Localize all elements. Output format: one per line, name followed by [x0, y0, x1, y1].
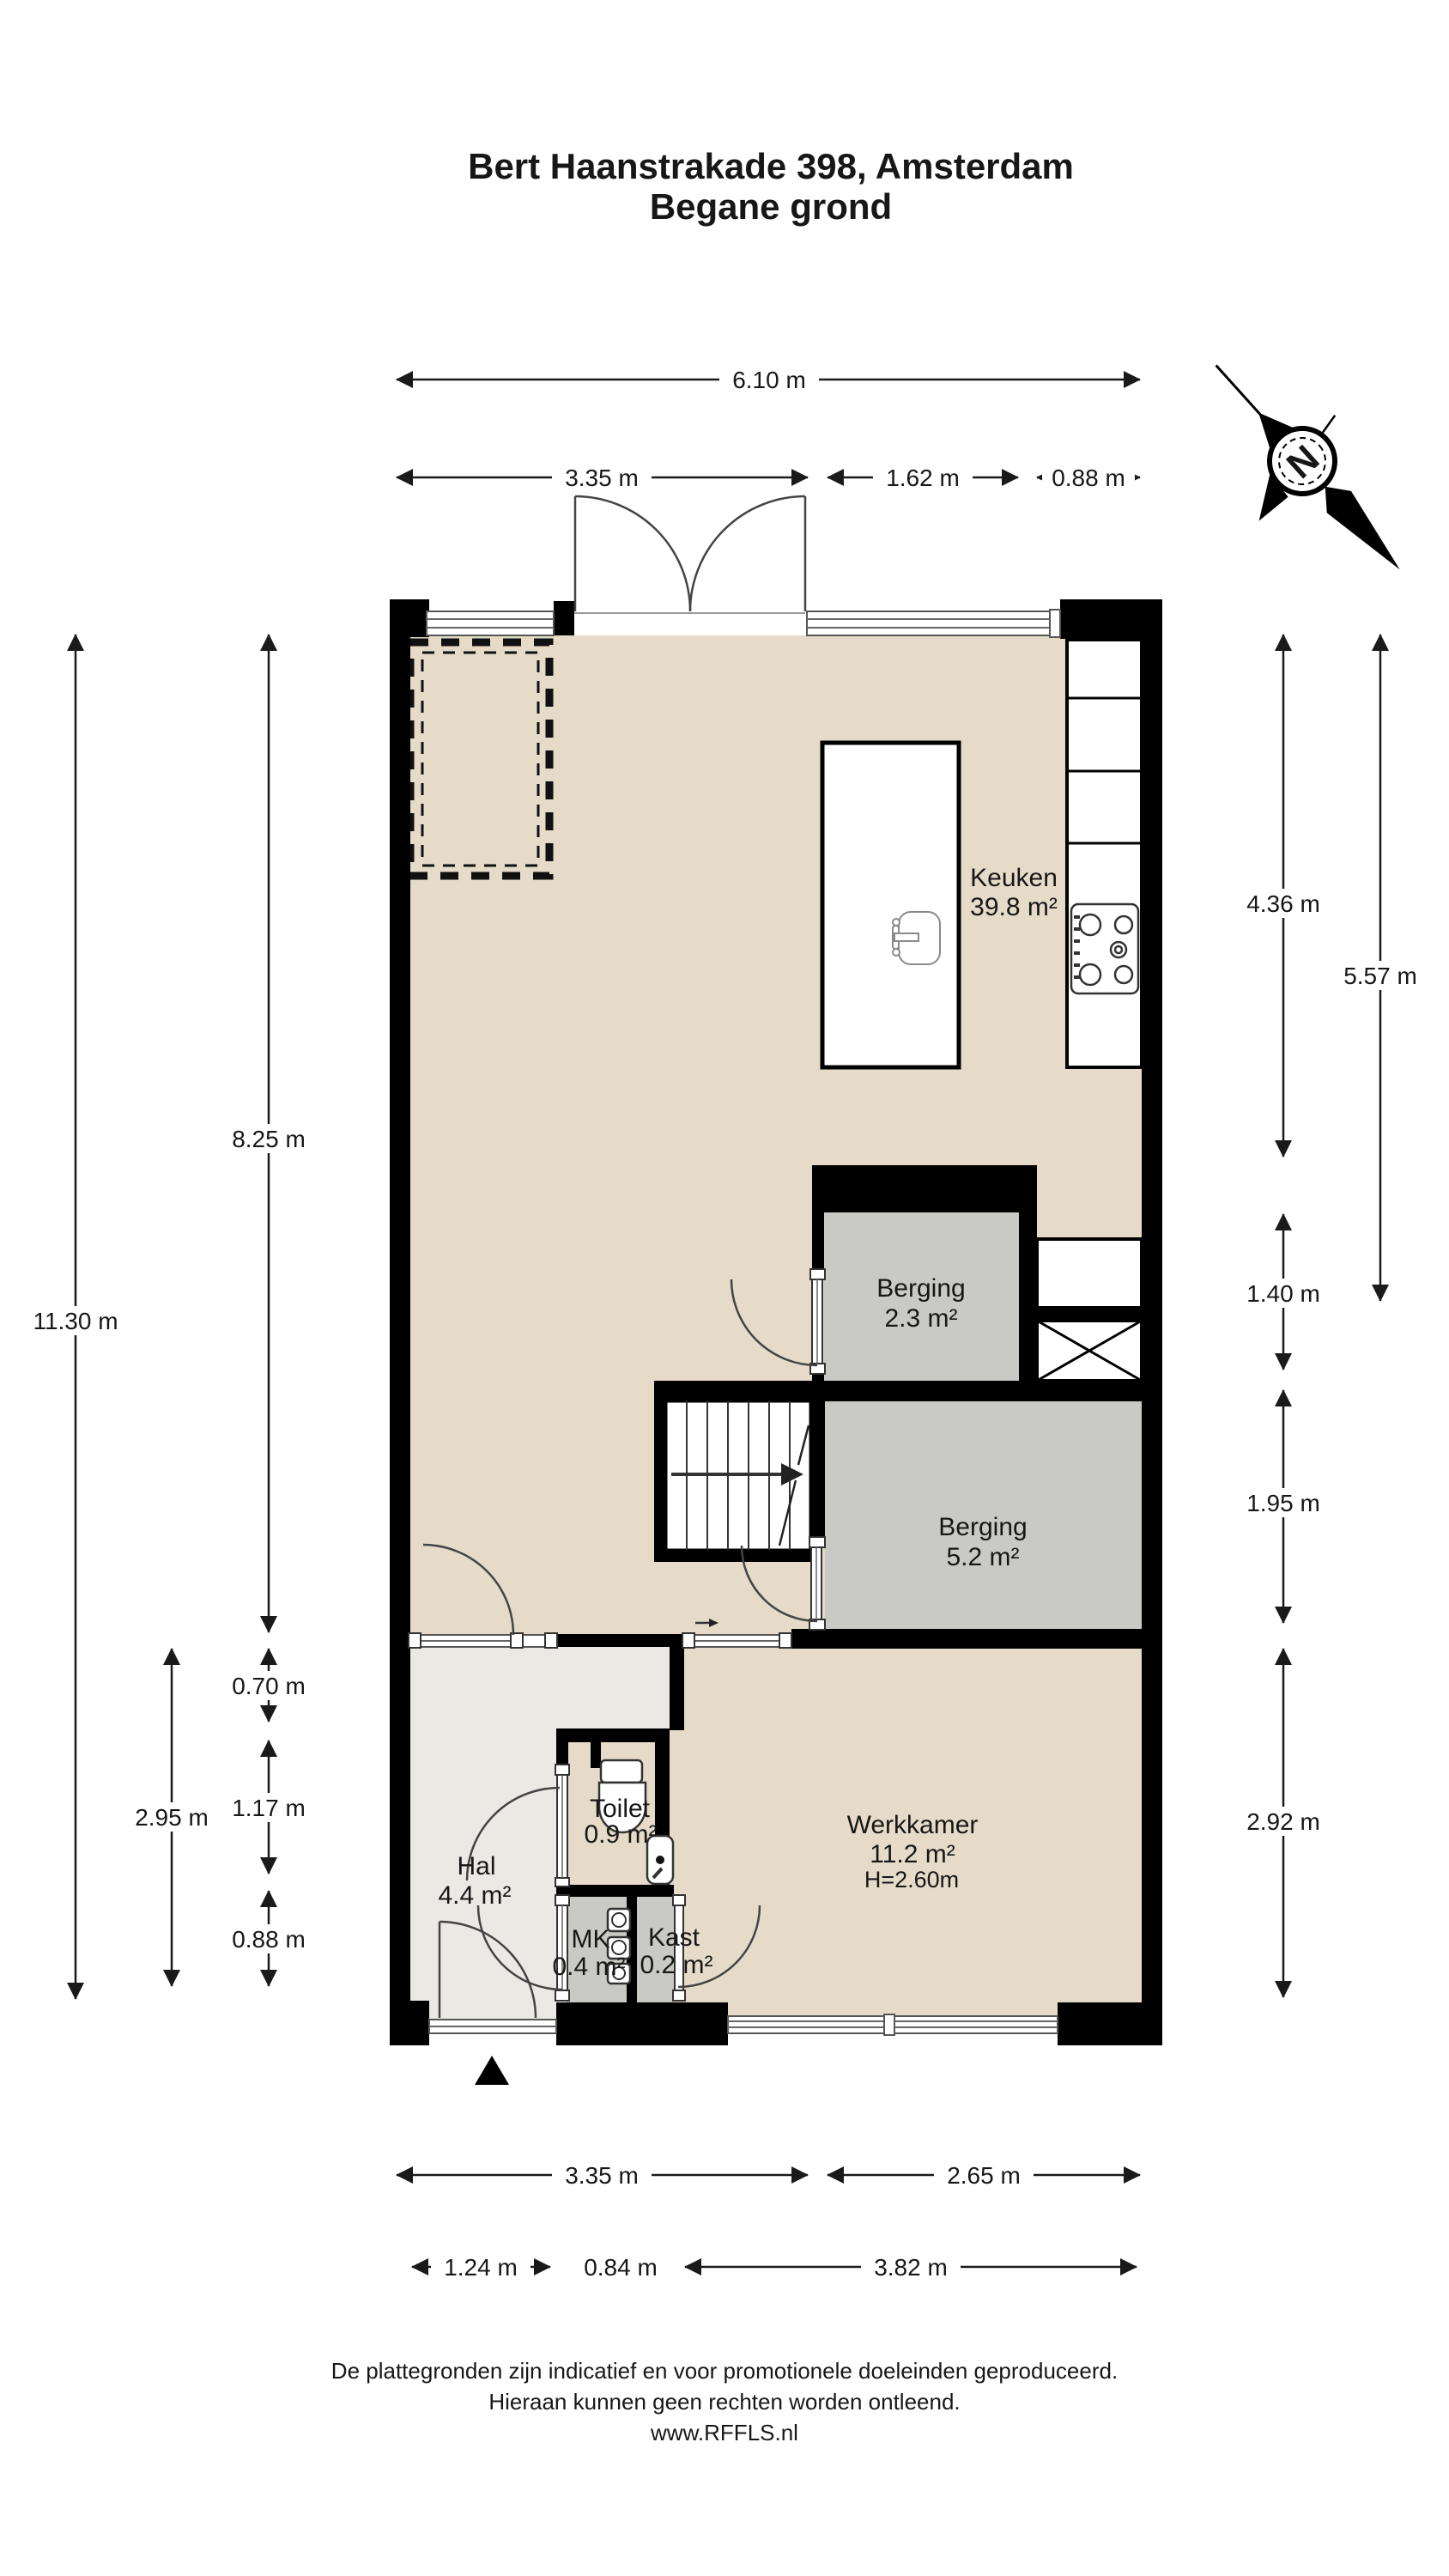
wall-bottom-center — [556, 2002, 728, 2045]
wall-left — [390, 599, 410, 2045]
floorplan-page: Bert Haanstrakade 398, Amsterdam Begane … — [0, 0, 1449, 2576]
floorplan-drawing: Bert Haanstrakade 398, Amsterdam Begane … — [0, 0, 1449, 2576]
hal-floor — [410, 1646, 556, 2026]
toilet-area: 0.9 m² — [584, 1820, 657, 1849]
double-door-top — [575, 496, 805, 611]
dim-right-seg3: 1.95 m — [1246, 1490, 1320, 1516]
washer-position-cross-icon — [1037, 1321, 1142, 1381]
dim-bottom-row1-seg2: 2.65 m — [947, 2162, 1021, 2189]
hal-floor-corridor — [556, 1646, 670, 1730]
berging-klein-area: 2.3 m² — [884, 1304, 957, 1333]
berging-klein-label: Berging — [876, 1274, 965, 1303]
wall-top-right-corner — [1060, 599, 1162, 639]
wall-berging-klein-left — [812, 1212, 824, 1273]
dim-top-seg3: 0.88 m — [1052, 465, 1125, 491]
window-top-left — [427, 611, 554, 635]
dim-top-seg1: 3.35 m — [565, 465, 639, 491]
mk-label: MK — [572, 1925, 610, 1953]
dim-left-seg2: 0.70 m — [232, 1673, 306, 1699]
dim-bottom-row1-seg1: 3.35 m — [565, 2162, 639, 2189]
dim-left-seg4: 0.88 m — [232, 1926, 306, 1953]
dim-right-seg2: 1.40 m — [1246, 1280, 1320, 1307]
footer-line3: www.RFFLS.nl — [650, 2420, 798, 2445]
window-bottom-werkkamer — [728, 2014, 1058, 2035]
wall-toilet-bottom — [556, 1885, 674, 1897]
wall-berging-groot-bottom — [791, 1629, 1162, 1649]
kast-label: Kast — [648, 1923, 700, 1952]
wall-berging-klein-right — [1019, 1212, 1037, 1401]
wall-top-left-corner — [390, 599, 429, 637]
dim-bottom-row2-seg2: 0.84 m — [584, 2254, 658, 2281]
dim-right-outer: 5.57 m — [1343, 963, 1417, 989]
footer-line2: Hieraan kunnen geen rechten worden ontle… — [488, 2389, 960, 2415]
footer-disclaimer: De plattegronden zijn indicatief en voor… — [331, 2358, 1118, 2445]
entrance-marker-icon — [475, 2056, 509, 2085]
wall-hal-werkkamer — [670, 1646, 684, 1730]
page-title-address: Bert Haanstrakade 398, Amsterdam — [468, 146, 1074, 186]
dim-right-seg4: 2.92 m — [1246, 1808, 1320, 1835]
storage-cabinet — [1037, 1239, 1142, 1381]
wall-stairs-bottom — [654, 1550, 810, 1562]
stove-icon — [1071, 904, 1138, 993]
berging-groot-area: 5.2 m² — [946, 1543, 1019, 1571]
kitchen-counter — [1067, 640, 1142, 1067]
keuken-area: 39.8 m² — [970, 893, 1058, 921]
wall-stairs-left — [654, 1381, 666, 1562]
glass-partition-hal — [409, 1633, 557, 1648]
toilet-label: Toilet — [590, 1795, 651, 1823]
dim-bottom-row2-seg3: 3.82 m — [874, 2254, 948, 2281]
compass-north-icon: N — [1162, 329, 1440, 618]
berging-groot-label: Berging — [938, 1513, 1027, 1541]
mk-area: 0.4 m² — [552, 1953, 625, 1981]
werkkamer-area: 11.2 m² — [870, 1840, 955, 1868]
dim-top-total: 6.10 m — [732, 367, 806, 393]
wall-bottom-right-corner — [1058, 2002, 1162, 2045]
dim-left-outer-bottom: 2.95 m — [135, 1804, 209, 1831]
window-top-right — [807, 610, 1060, 637]
dim-top-seg2: 1.62 m — [886, 465, 960, 491]
werkkamer-label: Werkkamer — [847, 1811, 979, 1839]
wall-hal-north — [556, 1634, 682, 1647]
wall-toilet-top — [556, 1728, 670, 1742]
dim-left-seg3: 1.17 m — [232, 1795, 306, 1821]
footer-line1: De plattegronden zijn indicatief en voor… — [331, 2358, 1118, 2384]
page-title-floor: Begane grond — [650, 186, 892, 227]
entry-threshold — [429, 2020, 556, 2033]
hal-area: 4.4 m² — [438, 1881, 511, 1910]
wall-bottom-left-corner — [390, 2001, 429, 2045]
glass-partition-werkkamer — [682, 1633, 791, 1648]
wall-berging-groot-left — [810, 1401, 825, 1539]
werkkamer-height: H=2.60m — [864, 1867, 959, 1893]
dim-bottom-row2-seg1: 1.24 m — [444, 2254, 518, 2281]
keuken-label: Keuken — [970, 864, 1058, 892]
wall-berging-klein-top — [812, 1165, 1037, 1212]
dim-right-seg1: 4.36 m — [1246, 890, 1320, 917]
kast-area: 0.2 m² — [640, 1951, 712, 1979]
wall-top-pier — [554, 601, 574, 635]
wall-berging-groot-top — [654, 1381, 1142, 1401]
dim-left-seg1: 8.25 m — [232, 1126, 306, 1152]
kitchen-island — [822, 743, 959, 1067]
sink-icon — [893, 912, 940, 964]
hal-label: Hal — [457, 1852, 495, 1880]
stairs — [666, 1401, 810, 1550]
dim-left-total: 11.30 m — [33, 1308, 118, 1334]
wall-right — [1142, 599, 1162, 2045]
